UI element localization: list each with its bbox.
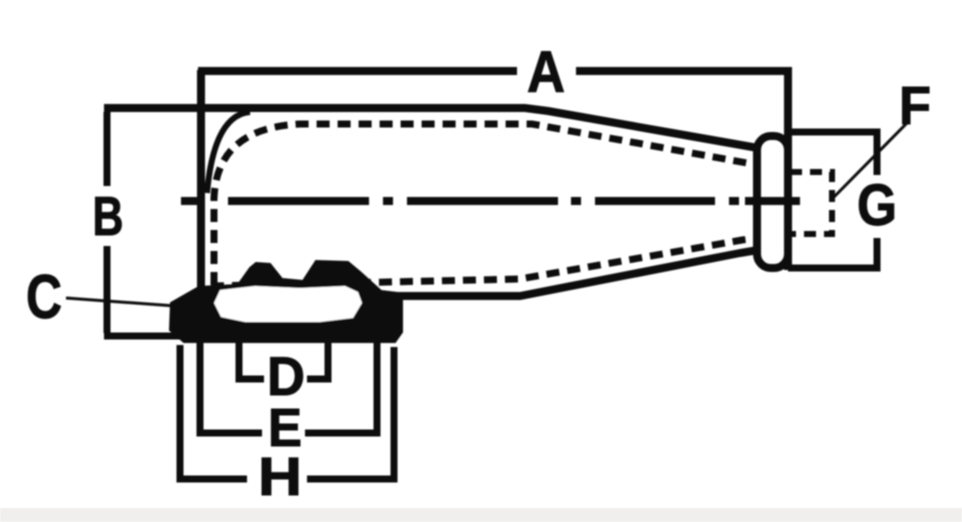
svg-text:C: C (26, 263, 62, 332)
svg-text:H: H (258, 447, 302, 507)
svg-text:A: A (527, 40, 565, 105)
svg-text:G: G (857, 173, 897, 238)
svg-text:F: F (899, 76, 931, 136)
svg-text:B: B (93, 185, 124, 247)
